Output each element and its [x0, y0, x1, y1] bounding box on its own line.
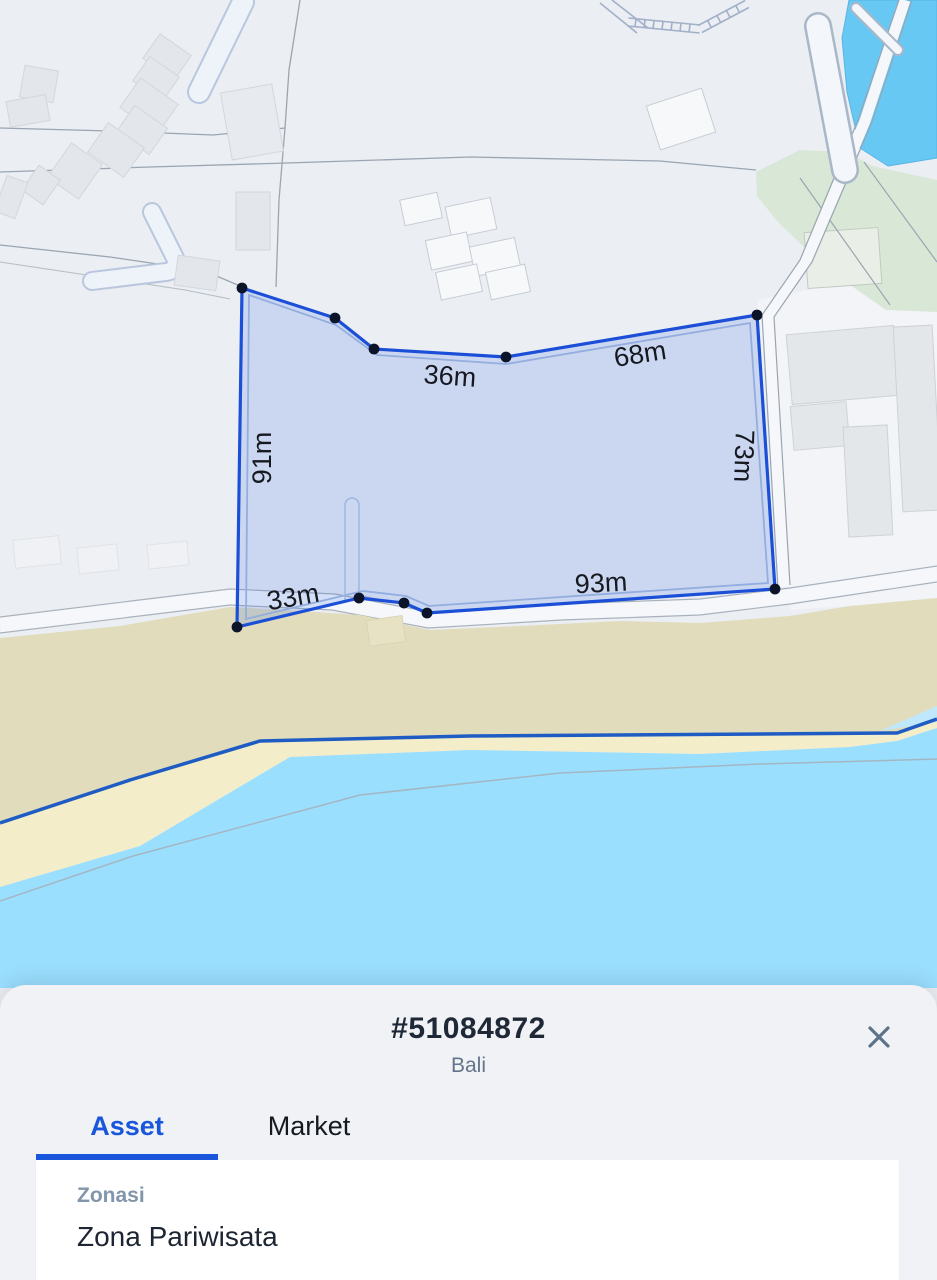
measurement-label-36m: 36m	[423, 359, 477, 393]
close-button[interactable]	[855, 1013, 903, 1061]
asset-panel: Zonasi Zona Pariwisata	[36, 1160, 899, 1280]
close-icon	[861, 1019, 897, 1055]
measurement-label-91m: 91m	[247, 432, 277, 485]
measurement-label-73m: 73m	[728, 429, 760, 483]
zoning-field: Zonasi Zona Pariwisata	[77, 1184, 899, 1253]
tab-asset-label: Asset	[90, 1111, 164, 1141]
measurement-label-93m: 93m	[574, 567, 628, 600]
parcel-id-title: #51084872	[0, 1012, 937, 1046]
tab-asset[interactable]: Asset	[36, 1111, 218, 1160]
sheet-header: #51084872 Bali	[0, 985, 937, 1078]
tab-bar: Asset Market	[0, 1111, 937, 1160]
zoning-field-value: Zona Pariwisata	[77, 1221, 899, 1253]
zoning-field-label: Zonasi	[77, 1184, 899, 1208]
app-screen: 36m 68m 91m 73m 33m 93m #51084872 Bali A…	[0, 0, 937, 1280]
tab-market-label: Market	[268, 1111, 351, 1141]
tab-market[interactable]: Market	[218, 1111, 400, 1160]
map-beach-hut	[366, 616, 405, 647]
region-subtitle: Bali	[0, 1054, 937, 1078]
map-canvas[interactable]: 36m 68m 91m 73m 33m 93m	[0, 0, 937, 988]
bottom-sheet: #51084872 Bali Asset Market Zonasi Zona …	[0, 985, 937, 1280]
